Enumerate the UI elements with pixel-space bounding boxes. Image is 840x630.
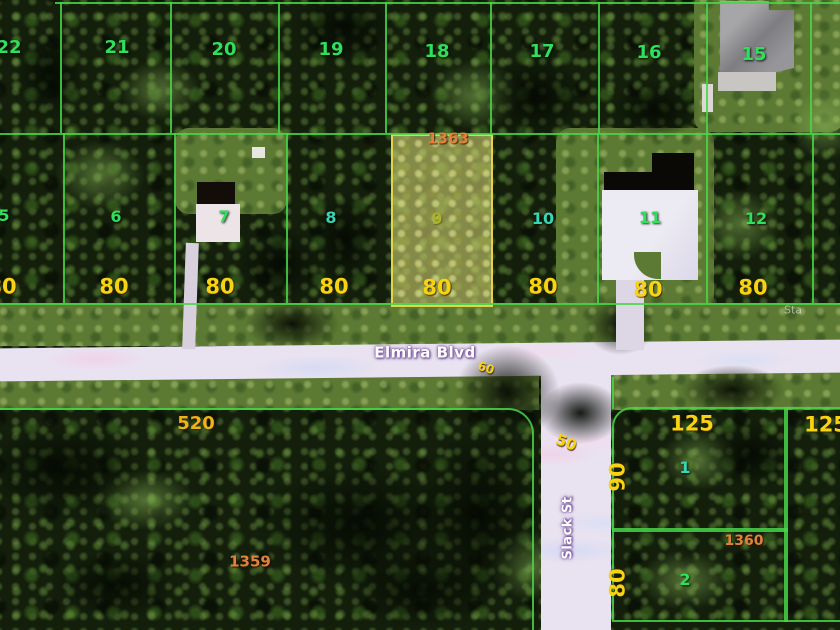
lot-1-frontage-125: 125 bbox=[670, 414, 714, 435]
block-number-1363: 1363 bbox=[427, 132, 469, 147]
lot-number-1: 1 bbox=[679, 460, 690, 476]
frontage-80: 80 bbox=[633, 280, 662, 301]
patio-lot-15 bbox=[718, 72, 776, 91]
canopy-highlight bbox=[120, 60, 200, 120]
house-lot-15-roof bbox=[710, 1, 794, 77]
parcel-line bbox=[612, 377, 614, 409]
far-right-frontage-125: 125 bbox=[804, 415, 840, 436]
lot-number-8: 8 bbox=[325, 210, 336, 226]
block-number-1360: 1360 bbox=[725, 534, 764, 548]
lot-number-11: 11 bbox=[639, 210, 661, 226]
canopy-highlight bbox=[790, 90, 840, 160]
parcel-line bbox=[810, 2, 812, 133]
lot-number-7: 7 bbox=[218, 209, 229, 225]
tree-shadow bbox=[610, 80, 700, 140]
lot-number-2: 2 bbox=[679, 572, 690, 588]
shed-lot-7 bbox=[252, 147, 265, 158]
tree-shadow bbox=[480, 55, 590, 140]
lot-number-18: 18 bbox=[424, 43, 449, 61]
parcel-line bbox=[170, 2, 172, 133]
tree-shadow bbox=[538, 382, 623, 444]
parcel-block-520-1359 bbox=[0, 408, 534, 630]
tree-shadow bbox=[290, 0, 400, 70]
canopy-highlight bbox=[700, 190, 780, 260]
lot-number-19: 19 bbox=[318, 41, 343, 59]
parcel-line bbox=[286, 133, 288, 303]
parcel-line bbox=[174, 133, 176, 303]
lot-number-16: 16 bbox=[636, 44, 661, 62]
parcel-line bbox=[278, 2, 280, 133]
parcel-line bbox=[597, 133, 599, 303]
lot-number-20: 20 bbox=[211, 41, 236, 59]
frontage-80: 80 bbox=[99, 277, 128, 298]
frontage-80: 80 bbox=[738, 278, 767, 299]
tree-shadow bbox=[15, 30, 85, 120]
parcel-line bbox=[706, 2, 708, 133]
lot-number-5: 5 bbox=[0, 208, 10, 224]
block-number-520: 520 bbox=[177, 415, 215, 433]
parcel-line bbox=[385, 2, 387, 133]
street-label-faint: Sta bbox=[784, 305, 802, 316]
lot-1-depth-90: 90 bbox=[608, 462, 629, 491]
parcel-line bbox=[63, 133, 65, 303]
lot-number-21: 21 bbox=[104, 39, 129, 57]
block-number-1359: 1359 bbox=[229, 555, 271, 570]
frontage-80: 80 bbox=[0, 277, 17, 298]
frontage-80: 80 bbox=[422, 278, 451, 299]
parcel-line bbox=[55, 2, 840, 4]
parcel-line bbox=[812, 133, 814, 303]
street-label-elmira-blvd: Elmira Blvd bbox=[374, 346, 476, 361]
parcel-line bbox=[0, 133, 840, 135]
tree-shadow bbox=[245, 298, 340, 350]
lot-number-12: 12 bbox=[745, 211, 767, 227]
lot-number-9: 9 bbox=[431, 211, 442, 227]
frontage-80: 80 bbox=[319, 277, 348, 298]
parcel-line bbox=[490, 2, 492, 133]
frontage-80: 80 bbox=[205, 277, 234, 298]
lot-number-6: 6 bbox=[110, 209, 121, 225]
frontage-80: 80 bbox=[528, 277, 557, 298]
lot-number-15: 15 bbox=[741, 46, 766, 64]
roadside-grass-north bbox=[0, 303, 840, 346]
parcel-line bbox=[706, 133, 708, 303]
aerial-parcel-map[interactable]: 22 21 20 19 18 17 16 15 5 6 7 8 9 10 11 … bbox=[0, 0, 840, 630]
house-lot-7-roof-shadow bbox=[197, 182, 235, 206]
parcel-line bbox=[60, 2, 62, 133]
lot-number-10: 10 bbox=[532, 211, 554, 227]
parcel-far-right bbox=[784, 407, 840, 622]
canopy-highlight bbox=[55, 140, 145, 210]
street-label-slack-st: Slack St bbox=[562, 496, 575, 559]
parcel-line bbox=[0, 303, 840, 305]
parcel-line bbox=[598, 2, 600, 133]
lot-number-17: 17 bbox=[529, 43, 554, 61]
lot-number-22: 22 bbox=[0, 39, 22, 57]
lot-2-depth-80: 80 bbox=[608, 568, 629, 597]
